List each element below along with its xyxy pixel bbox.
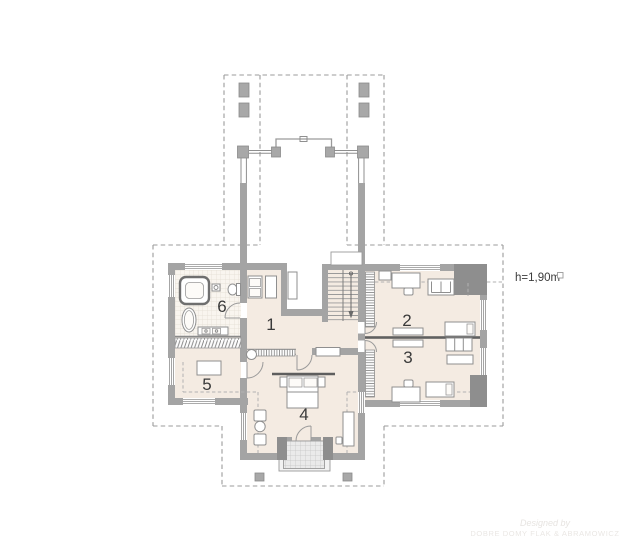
void-railing	[238, 137, 369, 184]
wardrobe	[366, 272, 375, 327]
chair	[404, 380, 413, 387]
chimney-block	[454, 264, 487, 295]
window	[358, 392, 365, 413]
shelf	[393, 340, 423, 347]
room-label-2: 2	[402, 311, 411, 330]
desk	[392, 273, 420, 288]
nightstand	[280, 377, 287, 387]
window	[480, 348, 487, 375]
table	[197, 361, 221, 375]
watermark: Designed by DOBRE DOMY FLAK & ABRAMOWICZ	[470, 518, 619, 538]
dresser	[446, 338, 472, 351]
window	[240, 413, 247, 440]
gallery-shelf	[288, 272, 297, 299]
watermark-line1: Designed by	[520, 518, 571, 528]
wardrobe	[266, 276, 277, 298]
porch-post	[343, 473, 352, 481]
window	[183, 398, 215, 405]
room-label-6: 6	[217, 297, 226, 316]
height-annotation: h=1,90m	[515, 272, 563, 284]
chair	[404, 288, 413, 295]
porch-post	[255, 473, 264, 481]
height-annotation-text: h=1,90m	[515, 272, 560, 284]
console-shelf	[316, 348, 340, 357]
desk	[392, 387, 420, 402]
room-label-3: 3	[403, 348, 412, 367]
armchair	[254, 410, 266, 421]
window	[168, 358, 175, 385]
height-annotation-square-icon	[558, 273, 564, 279]
room-label-4: 4	[299, 405, 308, 424]
floor-plan-svg: 1 2 3 4 5 6 h=1,90m Designed by DOBRE DO…	[0, 0, 638, 556]
shelf	[447, 355, 473, 364]
room5-furniture	[197, 361, 221, 375]
chimney-flues	[239, 83, 369, 117]
toilet	[228, 284, 237, 295]
chair	[336, 437, 342, 444]
window	[185, 263, 222, 270]
knee-wall-storage	[175, 338, 241, 348]
room-label-5: 5	[202, 375, 211, 394]
shelf	[379, 271, 391, 280]
wardrobe	[366, 350, 375, 397]
room-label-1: 1	[266, 315, 275, 334]
pillow	[446, 384, 452, 395]
armchair	[254, 434, 266, 445]
round-item	[247, 350, 257, 360]
watermark-line2: DOBRE DOMY FLAK & ABRAMOWICZ	[470, 529, 619, 538]
desk	[343, 412, 354, 446]
round-table	[255, 421, 265, 431]
chimney-block	[470, 375, 487, 407]
radiator	[256, 350, 295, 357]
window	[168, 275, 175, 297]
pillow	[467, 324, 473, 334]
nightstand	[318, 377, 325, 387]
window	[400, 264, 440, 271]
floor-plan-page: 1 2 3 4 5 6 h=1,90m Designed by DOBRE DO…	[0, 0, 638, 556]
window	[480, 300, 487, 330]
